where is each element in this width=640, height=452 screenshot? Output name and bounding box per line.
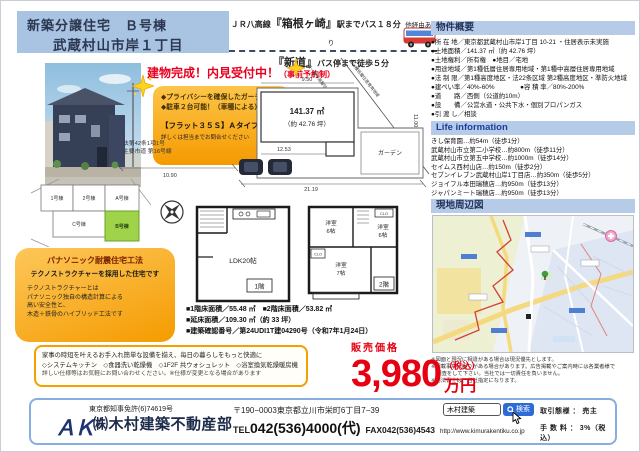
equipment-note: 詳しい仕様等はお気軽にお問い合わせください。※仕様が変更となる場合があります xyxy=(42,370,300,380)
overview-item: ●所 在 地／東京都武蔵村山市岸1丁目 10-21 ・住居表示未実施 xyxy=(431,38,637,47)
room-label: 洋室 xyxy=(377,223,389,231)
car-icon xyxy=(239,159,263,175)
website-url: http://www.kimurakentiku.co.jp xyxy=(440,428,525,435)
lot-label: 1号棟 xyxy=(51,195,64,202)
road-law-label: 法第42条1項1号 xyxy=(123,139,165,147)
floor-plan-1f: LDK20帖 1階 xyxy=(191,195,295,307)
life-item: きし保育園…約54m（徒歩1分） xyxy=(431,138,637,147)
life-item: ジョイフル本田瑞穂店…約950m（徒歩13分） xyxy=(431,181,637,190)
life-item: 武蔵村山市立第五中学校…約1000m（徒歩14分） xyxy=(431,155,637,164)
site-area-sqm: 141.37 ㎡ xyxy=(290,106,325,116)
construction-title: パナソニック耐震住宅工法 xyxy=(21,255,169,266)
section-title-overview: 物件概要 xyxy=(431,21,635,35)
property-overview-list: ●所 在 地／東京都武蔵村山市岸1丁目 10-21 ・住居表示未実施 ●土地面積… xyxy=(431,38,637,119)
location-marker xyxy=(526,314,531,319)
overview-item: ●建ぺい率／40%-60% ●容 積 率／80%-200% xyxy=(431,83,637,92)
room-label: 洋室 xyxy=(325,219,337,227)
life-item: ジャパンミート瑞穂店…約950m（徒歩13分） xyxy=(431,190,637,199)
overview-item: ●引 渡 し／相談 xyxy=(431,110,637,119)
dim-right: 11.00 xyxy=(412,114,418,127)
garden-label: ガーデン xyxy=(378,149,402,157)
lot-label-highlighted: B号棟 xyxy=(115,223,130,230)
company-name: ㈱木村建築不動産部 xyxy=(93,413,233,434)
construction-method-box: パナソニック耐震住宅工法 テクノストラクチャーを採用した住宅です テクノストラク… xyxy=(15,248,175,342)
flyer-subtitle: 武蔵村山市岸１丁目 xyxy=(27,34,229,54)
equipment-line: 家事の時短を叶えるお手入れ簡単な設備を揃え、毎日の暮らしをもっと快適に xyxy=(42,351,300,361)
section-title-life: Life information xyxy=(431,121,635,135)
overview-item: ●法 制 限／第1種高度地区・法22条区域 第2種高度地区・準防火地域 xyxy=(431,74,637,83)
room-size: 7帖 xyxy=(336,269,345,277)
price-value: 3,980 xyxy=(351,354,441,394)
overview-item: ●土地権利／所有権 ●地目／宅地 xyxy=(431,56,637,65)
closet-label: CLO xyxy=(380,212,388,216)
station-name: 『箱根ヶ崎』 xyxy=(271,18,337,30)
overview-item: ●設 備／公営水道・公共下水・個別プロパンガス xyxy=(431,101,637,110)
compass-icon xyxy=(159,199,185,225)
lot-label: 2号棟 xyxy=(83,195,96,202)
overview-item: ●土地面積／141.37 ㎡（約 42.76 坪） xyxy=(431,47,637,56)
equipment-line: ◇システムキッチン ◇食器洗い乾燥機 ◇1F2F 共ウォシュレット ◇浴室換気乾… xyxy=(42,361,300,371)
floor-plan-2f: CLO CLO 洋室 6帖 洋室 6帖 洋室 7帖 2階 xyxy=(301,199,405,301)
price-tax-note: （税込） xyxy=(444,359,480,372)
closet-label: CLO xyxy=(314,253,322,257)
overview-item: ●用途地域／第1種低層住居専用地域・第1種中高層住居専用地域 xyxy=(431,65,637,74)
map-illustration xyxy=(433,216,633,352)
flyer-page: 新築分譲住宅 Ｂ号棟 武蔵村山市岸１丁目 ＪＲ八高線『箱根ヶ崎』駅までバス１８分… xyxy=(0,0,640,452)
room-size: 6帖 xyxy=(326,227,335,235)
road-name-label: 主要市道 第16号線 xyxy=(123,147,172,155)
contact-row: TEL 042(536)4000(代) FAX042(536)4543 http… xyxy=(233,418,525,438)
ldk-label: LDK20帖 xyxy=(229,256,257,265)
lot-label: C号棟 xyxy=(72,221,86,228)
dim-inner: 12.53 xyxy=(277,147,291,153)
dim-bottom: 21.19 xyxy=(304,187,318,192)
construction-description: テクノストラクチャーとは パナソニック独自の構造計算による 高い安全性と、 木造… xyxy=(21,285,169,319)
tel-number: 042(536)4000(代) xyxy=(250,418,361,438)
construction-subtitle: テクノストラクチャーを採用した住宅です xyxy=(21,268,169,278)
area-map xyxy=(432,215,634,353)
life-information-list: きし保育園…約54m（徒歩1分） 武蔵村山市立第二小学校…約800m（徒歩11分… xyxy=(431,138,637,198)
area-line: ■1階床面積／55.48 ㎡ ■2階床面積／53.82 ㎡ xyxy=(186,304,431,315)
equipment-box: 家事の時短を叶えるお手入れ簡単な設備を揃え、毎日の暮らしをもっと快適に ◇システ… xyxy=(34,345,308,387)
site-plan: 第一種中高層住居専用地域 第一種低層住居専用地域 141.37 ㎡ （約 42.… xyxy=(111,56,431,192)
life-item: 武蔵村山市立第二小学校…約800m（徒歩11分） xyxy=(431,147,637,156)
lot-label: A号棟 xyxy=(115,195,128,202)
floor-area-info: ■1階床面積／55.48 ㎡ ■2階床面積／53.82 ㎡ ■延床面積／109.… xyxy=(186,304,431,337)
cursor-icon xyxy=(512,412,523,425)
dashed-divider xyxy=(229,50,437,52)
car-icon xyxy=(268,159,292,175)
company-address: 〒190−0003東京都立川市栄町6丁目7−39 xyxy=(233,405,379,416)
footer-company-box: 東京都知事免許(6)74619号 ＡＫ ㈱木村建築不動産部 〒190−0003東… xyxy=(29,398,617,445)
flyer-title: 新築分譲住宅 Ｂ号棟 xyxy=(27,15,229,34)
floor2-label: 2階 xyxy=(379,280,390,289)
area-line: ■延床面積／109.30 ㎡（約 33 坪） xyxy=(186,315,431,326)
company-logo: ＡＫ xyxy=(55,412,93,442)
section-title-map: 現地周辺図 xyxy=(431,199,635,213)
price-unit: 万円 xyxy=(444,372,480,396)
price-block: 販売価格 3,980 （税込） 万円 xyxy=(351,339,521,396)
floor1-label: 1階 xyxy=(254,282,265,291)
lot-layout-map: 1号棟 2号棟 A号棟 C号棟 B号棟 xyxy=(31,179,151,247)
overview-item: ●道 路／西側（公道約10m） xyxy=(431,92,637,101)
title-box: 新築分譲住宅 Ｂ号棟 武蔵村山市岸１丁目 xyxy=(17,11,229,53)
price-label: 販売価格 xyxy=(351,339,521,354)
dim-top: 9.50 xyxy=(302,77,313,83)
search-input[interactable] xyxy=(443,403,501,416)
room-size: 6帖 xyxy=(378,231,387,239)
room-label: 洋室 xyxy=(335,261,347,269)
fax-number: FAX042(536)4543 xyxy=(366,425,435,435)
site-area-tsubo: （約 42.76 坪） xyxy=(284,119,330,128)
tel-label: TEL xyxy=(233,425,250,435)
area-line: ■建築確認番号／第24UDI1T建04290号（令和7年1月24日） xyxy=(186,326,431,337)
life-item: セブンイレブン武蔵村山岸1丁目店…約350m（徒歩5分） xyxy=(431,172,637,181)
transaction-type: 取引態様 ： 売主 xyxy=(540,406,597,416)
commission-fee: 手 数 料 ： 3%（税込） xyxy=(540,423,615,443)
dim-road: 10.90 xyxy=(163,173,177,179)
